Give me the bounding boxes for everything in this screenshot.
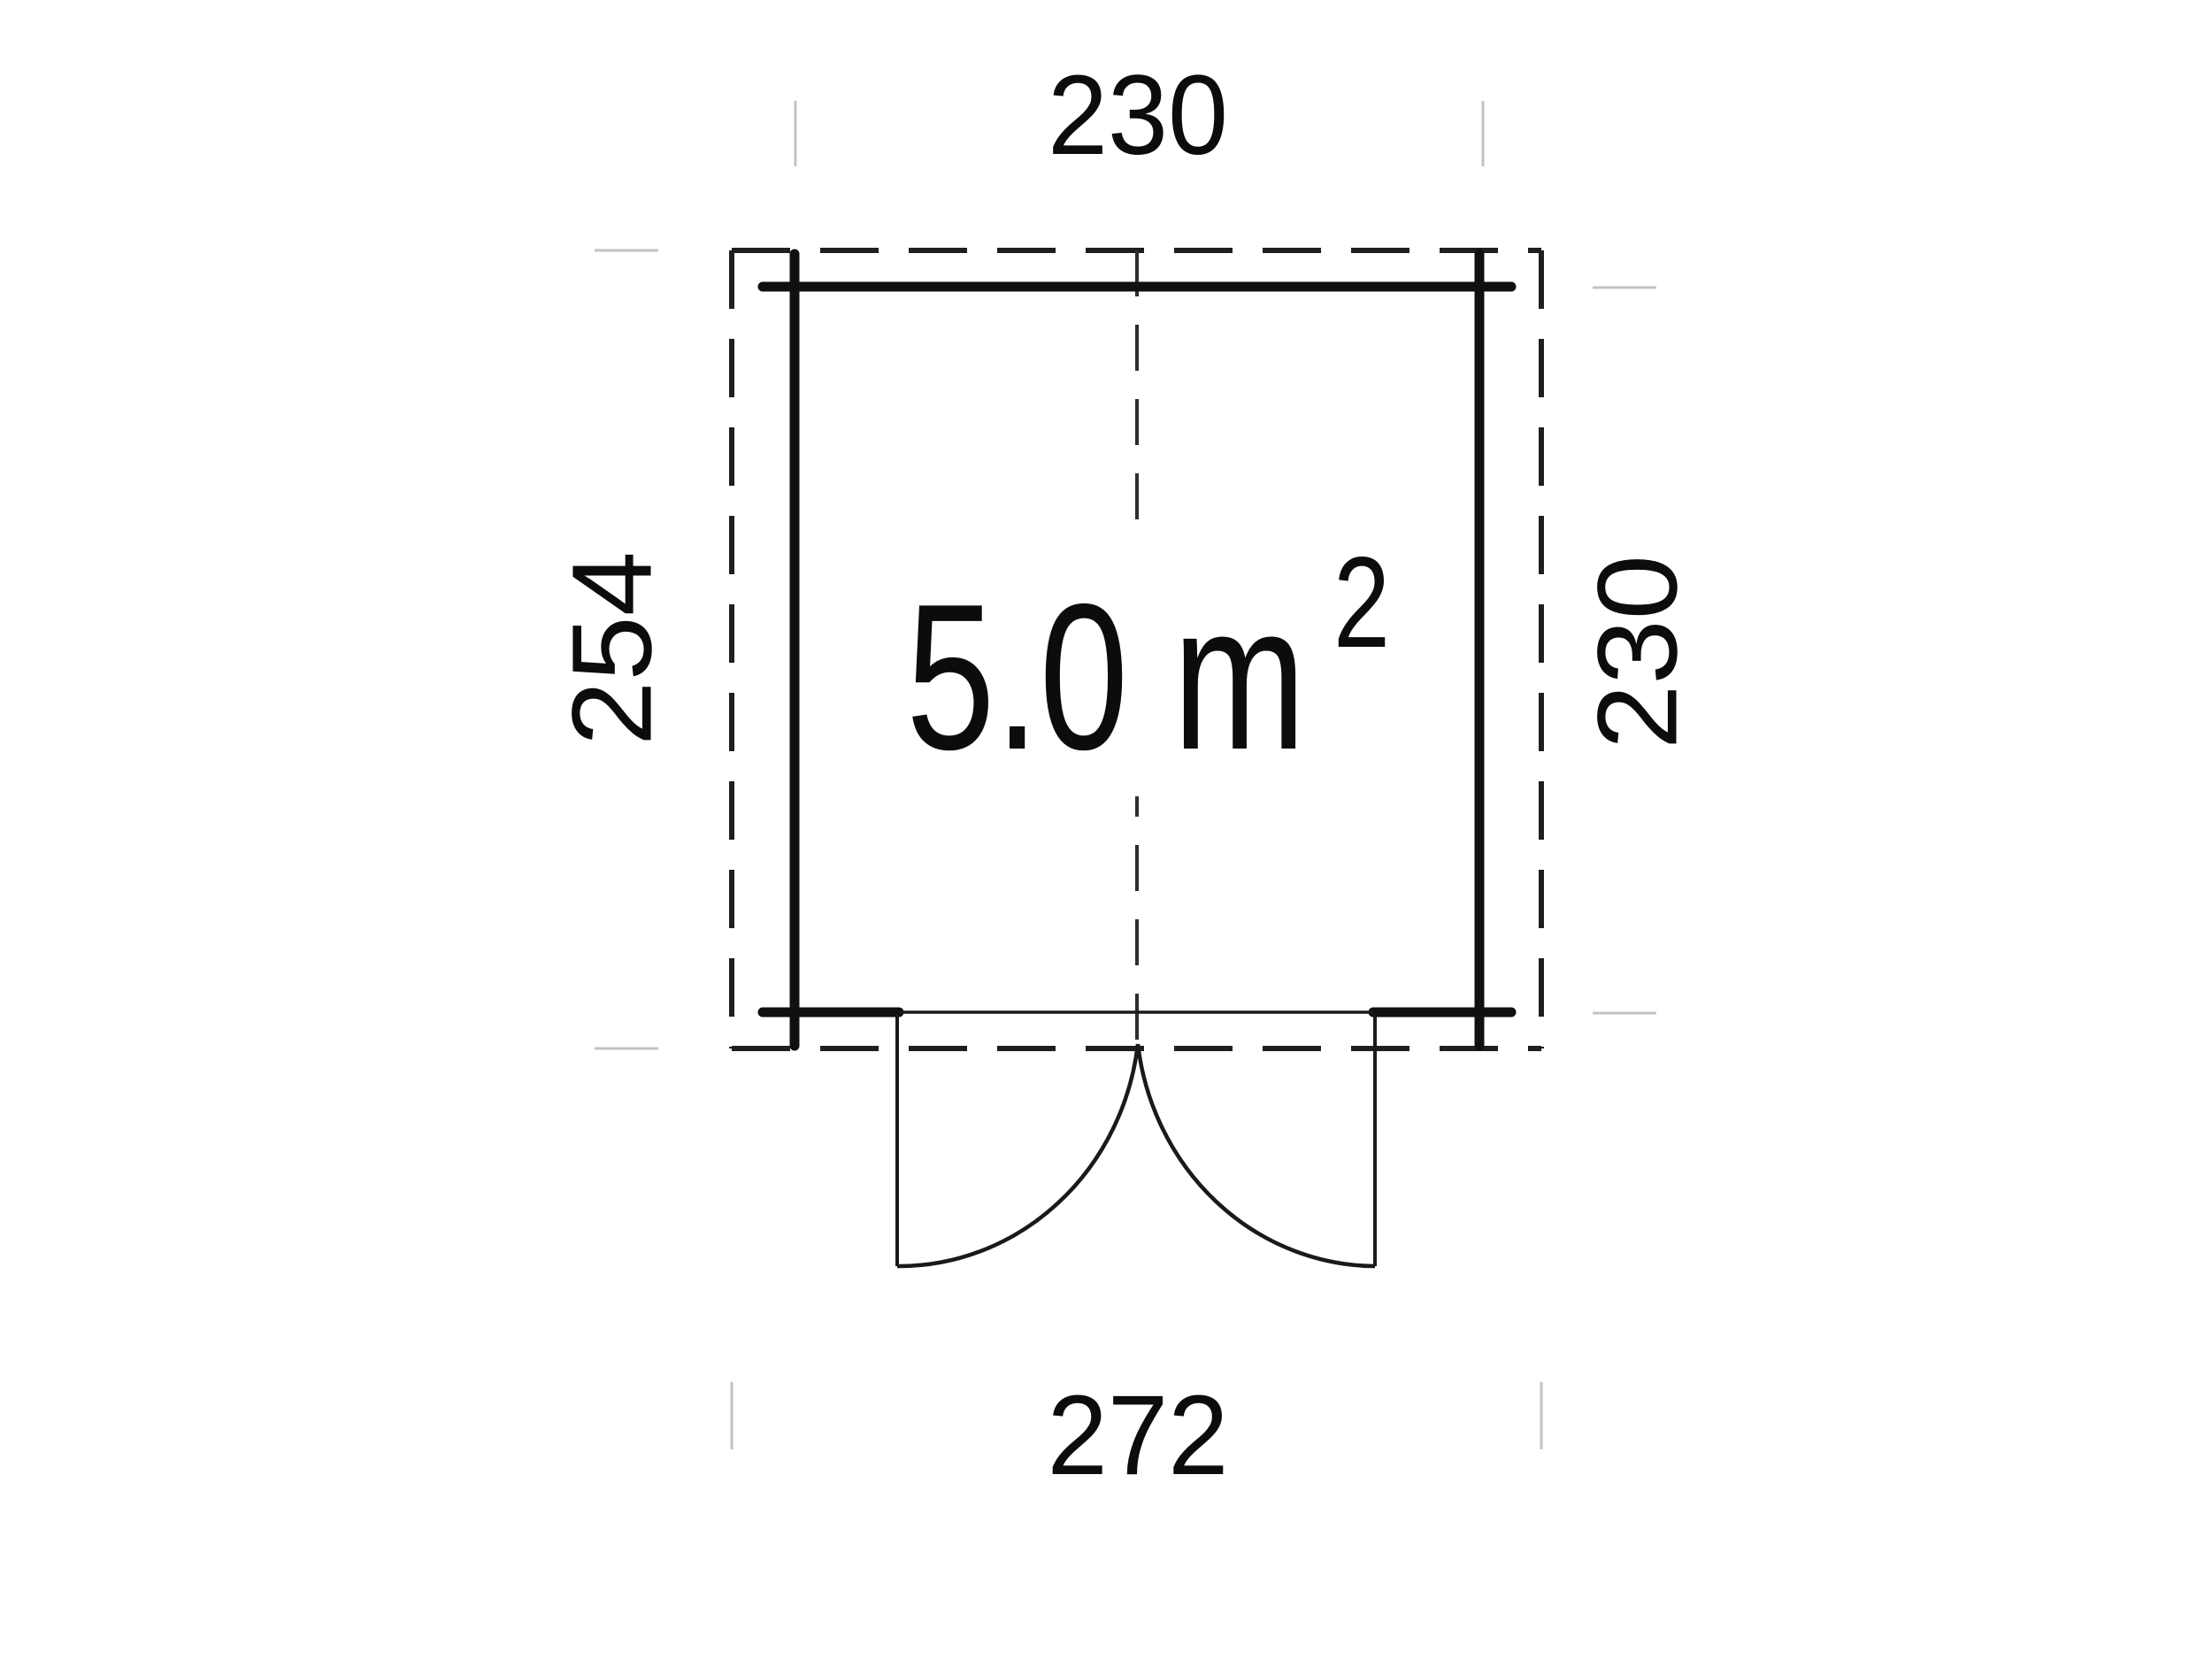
dimension-right-label: 230: [1575, 555, 1701, 749]
area-exponent: 2: [1333, 530, 1390, 674]
door-left-swing-arc: [897, 1044, 1138, 1266]
floor-plan-drawing: 230 272 254 230 5.0 m 2: [0, 0, 2212, 1659]
door-right-swing-arc: [1138, 1044, 1375, 1266]
floor-plan-page: 230 272 254 230 5.0 m 2: [0, 0, 2212, 1659]
area-value: 5.0 m: [906, 560, 1306, 793]
dimension-left-label: 254: [549, 551, 676, 746]
dimension-top-label: 230: [1048, 52, 1228, 179]
dimension-bottom-label: 272: [1048, 1372, 1229, 1499]
